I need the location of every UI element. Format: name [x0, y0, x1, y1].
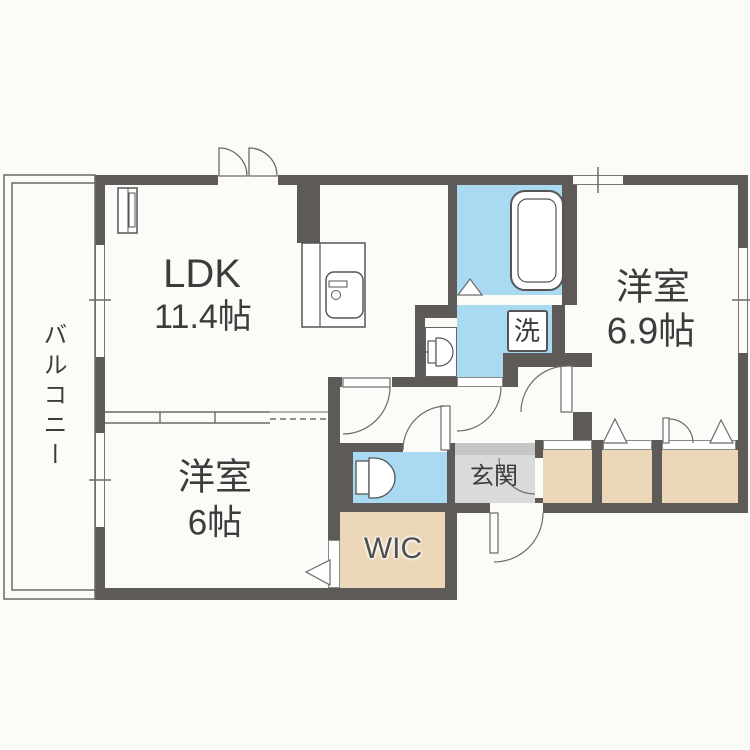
window-left-bedroom: [95, 433, 105, 527]
bedroom-right-door-leaf: [561, 366, 572, 412]
wall-washroom-se: [503, 367, 518, 387]
bedroom-right-label: 洋室: [616, 269, 690, 306]
sliding-door: [105, 412, 328, 423]
wall-bath-east: [562, 185, 577, 305]
washroom-floor-lower: [457, 353, 503, 377]
bedroom-right-door-arc: [521, 366, 567, 412]
closet-3-door-track: [662, 440, 736, 450]
wall-toilet-north: [353, 443, 403, 452]
wic-door-track: [328, 540, 340, 588]
kitchen-counter-icon: [302, 243, 365, 327]
ldk-hall-door-opening: [342, 377, 392, 387]
wall-toilet-east: [447, 443, 455, 503]
bedroom-left-label: 洋室: [178, 459, 252, 496]
kitchen-drain-icon: [332, 291, 341, 300]
wall-closet-div2: [652, 440, 662, 503]
toilet-floor: [353, 452, 447, 503]
wall-hall-ne-block: [503, 353, 592, 367]
wall-washroom-east: [552, 305, 565, 353]
wall-wic-north: [328, 503, 447, 512]
wic-door-marker: [306, 560, 330, 585]
wall-kitchen-stub: [297, 185, 320, 243]
closet-2: [602, 450, 652, 503]
entrance-door-arc: [494, 513, 543, 562]
wall-toilet-west: [340, 443, 353, 503]
washroom-door-threshold: [457, 377, 503, 387]
closet-1-door-track: [543, 440, 592, 450]
ldk-label: LDK: [163, 254, 241, 294]
floor-plan: バルコニー LDK 11.4帖 洋室 6.9帖 洋室 6帖 玄関 WIC 洗: [0, 0, 750, 750]
pipe-space-icon: [118, 188, 137, 233]
wall-bath-west: [448, 185, 457, 305]
bedroom-left-area-label: 6帖: [188, 506, 242, 541]
wall-washroom-nw: [415, 305, 457, 318]
kitchen-faucet-icon: [329, 281, 347, 287]
wall-closet-div1: [592, 440, 602, 503]
wall-top: [95, 175, 748, 185]
plan-linework: [0, 0, 750, 750]
entrance-label: 玄関: [470, 465, 518, 489]
entrance-door-opening: [490, 503, 543, 513]
wic-label: WIC: [364, 534, 422, 564]
wall-vanity-south: [425, 377, 457, 387]
toilet-door-opening: [403, 443, 443, 452]
bath-door-threshold: [458, 295, 508, 305]
closet-2-door-track: [603, 440, 652, 450]
wall-left: [95, 175, 105, 600]
bathroom-floor: [457, 185, 562, 295]
wall-washroom-west: [415, 318, 425, 387]
washroom-door-arc: [457, 387, 501, 431]
window-right: [738, 248, 748, 353]
wall-bottom-left: [95, 588, 457, 600]
wall-hall-east-lower: [573, 412, 592, 443]
double-door-opening: [218, 175, 278, 185]
balcony-label: バルコニー: [40, 322, 64, 472]
ldk-area-label: 11.4帖: [154, 300, 252, 334]
closet-3: [662, 450, 738, 503]
closet-1: [543, 450, 592, 503]
bedroom-right-area-label: 6.9帖: [607, 313, 695, 350]
double-door-icon: [219, 148, 277, 176]
shoe-closet-opening: [535, 458, 543, 498]
window-left-ldk: [95, 245, 105, 357]
laundry-label: 洗: [514, 318, 540, 344]
window-top: [573, 175, 623, 185]
vanity-unit: [425, 327, 457, 377]
ldk-hall-door-arc: [343, 387, 390, 434]
wall-entrance-west: [445, 503, 457, 600]
entrance-door-leaf: [490, 513, 498, 553]
